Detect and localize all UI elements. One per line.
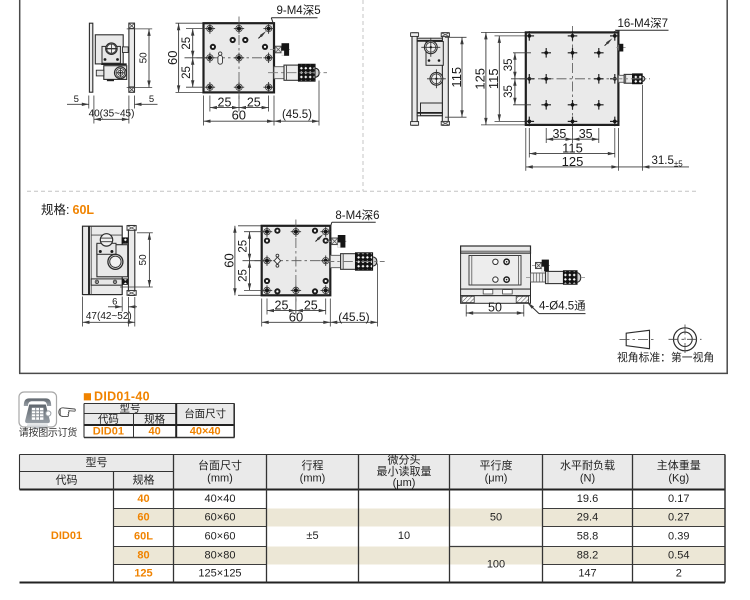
svg-text:40(35~45): 40(35~45) <box>89 108 135 119</box>
svg-text:行程: 行程 <box>302 459 324 472</box>
svg-text:台面尺寸: 台面尺寸 <box>198 458 242 472</box>
svg-text:请按图示订货: 请按图示订货 <box>19 426 77 439</box>
svg-text:视角标准：第一视角: 视角标准：第一视角 <box>617 350 714 364</box>
svg-text:25: 25 <box>304 299 318 313</box>
svg-text:25: 25 <box>238 269 250 282</box>
svg-text:40: 40 <box>137 493 149 505</box>
svg-text:0.27: 0.27 <box>668 512 689 524</box>
svg-text:147: 147 <box>578 568 596 580</box>
svg-text:水平耐负载: 水平耐负载 <box>560 458 615 472</box>
svg-text:DID01-40: DID01-40 <box>94 390 150 404</box>
svg-text:微分头: 微分头 <box>388 453 421 467</box>
svg-text:平行度: 平行度 <box>480 458 513 472</box>
svg-text:80: 80 <box>137 550 149 562</box>
svg-text:35: 35 <box>503 85 515 98</box>
svg-text:(μm): (μm) <box>393 477 416 489</box>
svg-text:47(42~52): 47(42~52) <box>86 311 132 322</box>
svg-text:2: 2 <box>676 568 682 580</box>
svg-text:0.54: 0.54 <box>668 550 689 562</box>
svg-text:(45.5): (45.5) <box>338 310 369 324</box>
svg-text:DID01: DID01 <box>51 530 82 542</box>
svg-text:35: 35 <box>503 58 515 71</box>
svg-text:5: 5 <box>74 94 79 105</box>
svg-text:115: 115 <box>486 68 501 89</box>
svg-text:10: 10 <box>398 530 410 542</box>
svg-text:31.5±5: 31.5±5 <box>652 155 684 168</box>
svg-text:(45.5): (45.5) <box>282 109 312 121</box>
svg-text:60: 60 <box>232 108 246 123</box>
svg-text:25: 25 <box>218 96 232 110</box>
svg-text:80×80: 80×80 <box>205 550 236 562</box>
svg-text:60L: 60L <box>73 203 95 217</box>
svg-text:40: 40 <box>148 426 160 438</box>
svg-text:35: 35 <box>552 127 566 141</box>
svg-text:50: 50 <box>138 254 149 266</box>
svg-text:5: 5 <box>149 94 154 105</box>
svg-text:125×125: 125×125 <box>198 568 241 580</box>
svg-text:代码: 代码 <box>56 474 78 487</box>
svg-text:40×40: 40×40 <box>190 426 221 438</box>
svg-text:60: 60 <box>165 51 180 65</box>
svg-text:19.6: 19.6 <box>577 493 598 505</box>
svg-text:35: 35 <box>579 127 593 141</box>
svg-text:125: 125 <box>134 568 152 580</box>
svg-text:25: 25 <box>275 299 289 313</box>
svg-text:规格: 规格 <box>133 473 155 487</box>
svg-text:最小读取量: 最小读取量 <box>377 464 432 478</box>
svg-text:(mm): (mm) <box>207 472 233 484</box>
svg-text:6: 6 <box>112 296 117 307</box>
svg-text:代码: 代码 <box>98 413 119 425</box>
svg-text:型号: 型号 <box>86 455 108 469</box>
svg-text:(Kg): (Kg) <box>668 472 689 484</box>
svg-text:±5: ±5 <box>306 530 318 542</box>
svg-text:(N): (N) <box>580 472 595 484</box>
svg-text:25: 25 <box>247 96 261 110</box>
svg-text:125: 125 <box>562 154 584 169</box>
svg-text:58.8: 58.8 <box>577 531 598 543</box>
svg-text:8-M4深6: 8-M4深6 <box>335 208 379 222</box>
svg-text:规格: 规格 <box>144 412 165 425</box>
svg-text:50: 50 <box>488 301 502 315</box>
svg-text:100: 100 <box>487 559 505 571</box>
svg-text:50: 50 <box>139 52 150 64</box>
svg-text:(μm): (μm) <box>485 472 508 484</box>
svg-text:50: 50 <box>490 512 502 524</box>
svg-text:DID01: DID01 <box>93 426 124 438</box>
svg-text:25: 25 <box>181 37 193 50</box>
svg-text:台面尺寸: 台面尺寸 <box>184 407 226 420</box>
svg-text:60: 60 <box>137 512 149 524</box>
svg-text:115: 115 <box>449 67 464 88</box>
svg-text:主体重量: 主体重量 <box>657 458 701 472</box>
svg-text:4-Ø4.5通: 4-Ø4.5通 <box>539 300 586 313</box>
svg-text:60: 60 <box>221 253 236 267</box>
svg-text:60L: 60L <box>134 531 153 543</box>
svg-text:88.2: 88.2 <box>577 550 598 562</box>
svg-text:规格:: 规格: <box>41 202 69 217</box>
svg-text:0.39: 0.39 <box>668 531 689 543</box>
svg-text:29.4: 29.4 <box>577 512 598 524</box>
svg-text:40×40: 40×40 <box>205 493 236 505</box>
svg-text:9-M4深5: 9-M4深5 <box>277 3 321 17</box>
svg-text:60×60: 60×60 <box>205 512 236 524</box>
svg-text:60: 60 <box>289 309 303 324</box>
svg-text:16-M4深7: 16-M4深7 <box>618 16 669 30</box>
svg-text:0.17: 0.17 <box>668 493 689 505</box>
svg-text:(mm): (mm) <box>300 472 326 484</box>
svg-text:25: 25 <box>238 240 250 253</box>
svg-text:60×60: 60×60 <box>205 531 236 543</box>
svg-text:25: 25 <box>181 66 193 79</box>
